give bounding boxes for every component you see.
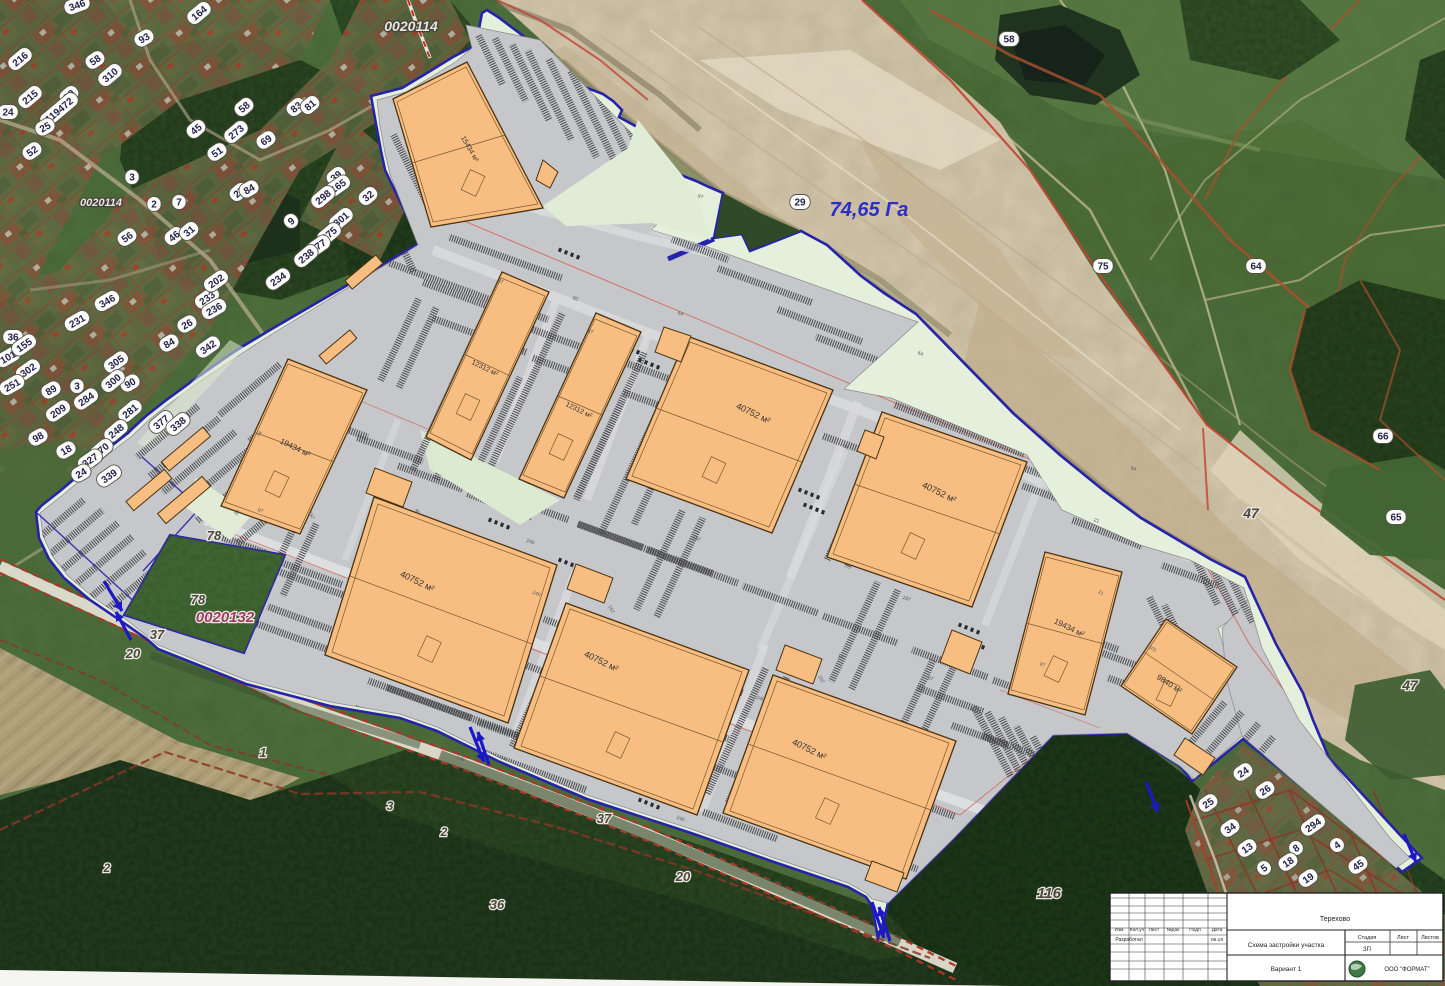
svg-text:1: 1 bbox=[259, 745, 266, 760]
svg-text:66: 66 bbox=[1377, 432, 1389, 443]
svg-text:20: 20 bbox=[675, 869, 691, 884]
svg-text:ЗП: ЗП bbox=[1363, 947, 1371, 953]
svg-text:37: 37 bbox=[150, 627, 165, 642]
svg-text:47: 47 bbox=[1401, 677, 1419, 693]
svg-text:2: 2 bbox=[151, 200, 157, 211]
svg-text:74,65 Га: 74,65 Га bbox=[830, 199, 909, 221]
svg-text:0020114: 0020114 bbox=[384, 18, 438, 34]
svg-text:47: 47 bbox=[1242, 505, 1260, 521]
svg-text:0020114: 0020114 bbox=[80, 197, 122, 209]
svg-text:3: 3 bbox=[74, 382, 80, 393]
svg-text:36: 36 bbox=[490, 897, 505, 912]
svg-text:78: 78 bbox=[191, 592, 206, 607]
svg-text:2: 2 bbox=[440, 825, 448, 839]
svg-text:Лист: Лист bbox=[1149, 927, 1160, 933]
svg-text:Изм: Изм bbox=[1115, 927, 1124, 933]
svg-text:Подп: Подп bbox=[1189, 927, 1201, 933]
svg-text:Листов: Листов bbox=[1421, 935, 1439, 941]
svg-text:24: 24 bbox=[2, 108, 14, 119]
svg-text:Дата: Дата bbox=[1212, 927, 1223, 933]
svg-text:Стадия: Стадия bbox=[1358, 935, 1377, 941]
svg-text:Лист: Лист bbox=[1397, 935, 1409, 941]
svg-text:29: 29 bbox=[794, 198, 806, 209]
svg-text:7: 7 bbox=[176, 198, 182, 209]
svg-text:06.19: 06.19 bbox=[1211, 937, 1223, 943]
svg-text:Схема застройки участка: Схема застройки участка bbox=[1248, 941, 1325, 949]
svg-text:64: 64 bbox=[1250, 262, 1262, 273]
svg-text:Разработал: Разработал bbox=[1115, 937, 1142, 943]
svg-text:3: 3 bbox=[387, 799, 394, 813]
svg-text:116: 116 bbox=[1037, 885, 1062, 902]
svg-text:Вариант 1: Вариант 1 bbox=[1271, 966, 1302, 973]
svg-text:2: 2 bbox=[103, 861, 111, 875]
svg-text:№док: №док bbox=[1167, 927, 1181, 933]
svg-text:Кол.уч: Кол.уч bbox=[1130, 927, 1145, 933]
svg-text:65: 65 bbox=[1390, 513, 1402, 524]
svg-text:78: 78 bbox=[207, 528, 222, 543]
svg-text:20: 20 bbox=[125, 646, 141, 661]
svg-text:ООО "ФОРМАТ": ООО "ФОРМАТ" bbox=[1384, 967, 1429, 973]
svg-text:0020132: 0020132 bbox=[196, 609, 255, 626]
svg-text:75: 75 bbox=[1097, 262, 1109, 273]
svg-text:Терехово: Терехово bbox=[1320, 916, 1350, 923]
svg-text:3: 3 bbox=[129, 173, 135, 184]
svg-text:58: 58 bbox=[1003, 35, 1015, 46]
svg-text:37: 37 bbox=[597, 811, 612, 826]
